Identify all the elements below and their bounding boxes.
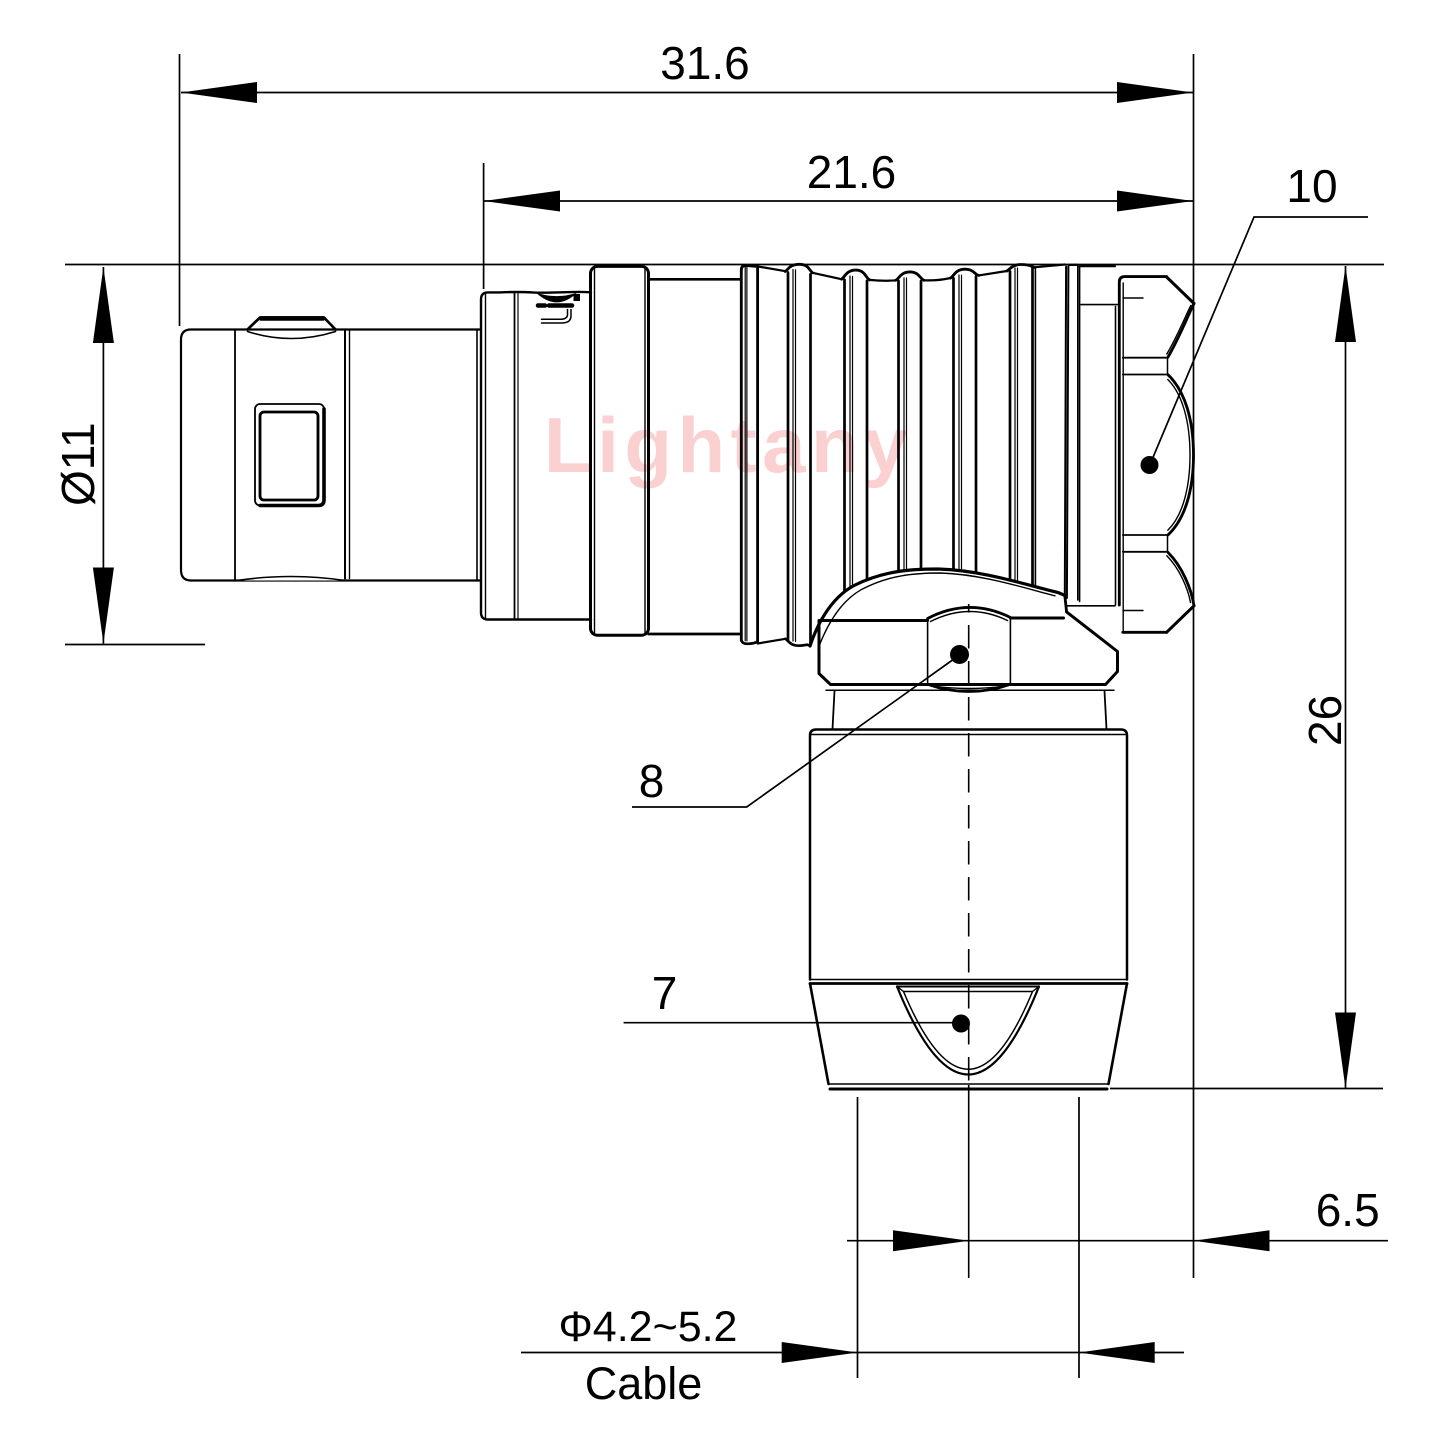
svg-text:Φ4.2~5.2: Φ4.2~5.2 [559, 1303, 738, 1351]
svg-text:Ø11: Ø11 [52, 422, 104, 506]
svg-text:7: 7 [652, 967, 678, 1019]
svg-text:6.5: 6.5 [1316, 1184, 1380, 1236]
svg-text:26: 26 [1299, 695, 1351, 746]
svg-text:31.6: 31.6 [660, 37, 750, 89]
svg-text:Cable: Cable [585, 1358, 703, 1409]
svg-text:21.6: 21.6 [807, 146, 897, 198]
svg-text:10: 10 [1286, 160, 1337, 212]
svg-text:Lightany: Lightany [544, 401, 913, 489]
svg-text:8: 8 [639, 755, 665, 807]
